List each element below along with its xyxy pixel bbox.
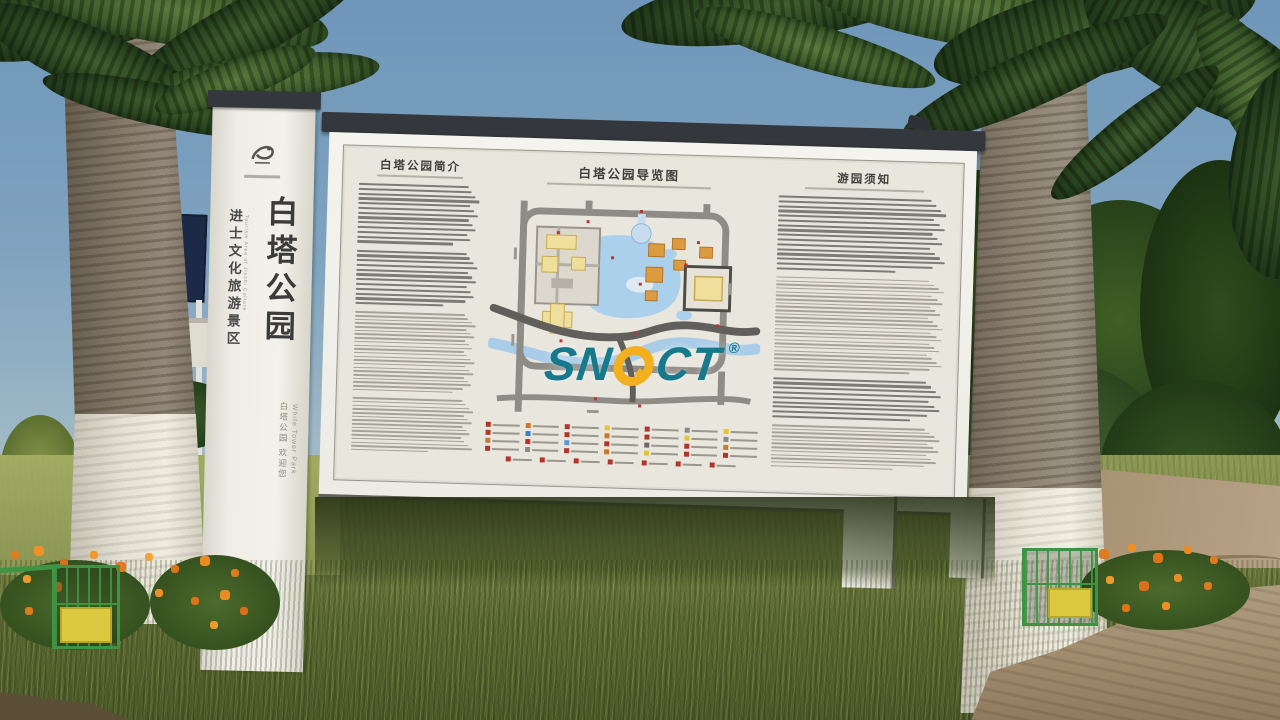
yellow-box <box>60 607 112 643</box>
intro-paragraph-cn <box>355 249 479 307</box>
orange-flowers <box>8 548 10 550</box>
watermark-suffix: CT <box>653 336 724 391</box>
pillar-cap <box>208 90 321 110</box>
text-line <box>771 465 893 470</box>
map-legend <box>485 422 758 459</box>
intro-paragraph-en <box>353 311 477 394</box>
map-pavilion <box>631 223 651 243</box>
map-building <box>645 291 657 301</box>
legend-item <box>565 440 599 446</box>
legend-item <box>676 461 702 467</box>
text-line <box>357 240 453 245</box>
legend-item <box>723 453 757 459</box>
legend-item <box>525 423 559 429</box>
notice-list-en <box>774 276 947 375</box>
legend-item <box>683 452 717 458</box>
pillar-area-label-en: Tourism Area of Jinshi Culture <box>241 215 249 312</box>
text-line <box>357 231 467 236</box>
legend-item <box>723 445 757 451</box>
legend-item <box>525 447 559 453</box>
legend-item <box>724 429 758 435</box>
map-building <box>546 235 576 250</box>
park-photo-scene: 白塔公园 进士文化旅游景区 Tourism Area of Jinshi Cul… <box>0 0 1280 720</box>
legend-item <box>644 442 678 448</box>
legend-item <box>485 430 519 436</box>
pillar-side-label: 白塔公园 欢迎您 <box>276 402 290 480</box>
legend-item <box>485 438 519 444</box>
legend-item <box>486 422 520 428</box>
text-line <box>772 415 910 421</box>
watermark: SNCT® <box>541 330 743 396</box>
pillar-side-label-en: White Tower Park <box>289 404 298 475</box>
watermark-ring-icon <box>611 346 656 386</box>
legend-item <box>525 439 559 445</box>
section-notice: 游园须知 <box>770 168 949 478</box>
map-building <box>571 257 585 270</box>
legend-item <box>605 425 639 431</box>
legend-item <box>645 426 679 432</box>
flowerbed-foliage <box>1080 550 1250 630</box>
text-line <box>359 188 472 194</box>
legend-item <box>565 424 599 430</box>
legend-item <box>642 460 668 466</box>
notice-extra-cn <box>772 377 943 422</box>
legend-item <box>540 457 566 463</box>
intro-subtitle-line <box>377 174 462 179</box>
map-building <box>551 278 573 288</box>
section-introduction: 白塔公园简介 <box>351 156 482 461</box>
board-panel: 白塔公园简介 白塔公园导览图 <box>333 144 965 498</box>
legend-item <box>564 448 598 454</box>
legend-item <box>710 462 736 468</box>
legend-item <box>604 449 638 455</box>
watermark-prefix: SN <box>542 336 616 391</box>
legend-item <box>565 432 599 438</box>
text-line <box>353 389 453 393</box>
legend-item <box>644 450 678 456</box>
legend-item <box>608 459 634 465</box>
legend-item <box>724 437 758 443</box>
text-line <box>777 267 896 273</box>
legend-item <box>684 428 718 434</box>
information-board: 白塔公园简介 白塔公园导览图 <box>319 112 978 513</box>
orange-flowers <box>1095 545 1097 547</box>
yellow-box <box>1048 588 1092 618</box>
map-building <box>646 267 663 282</box>
map-title: 白塔公园导览图 <box>493 160 765 187</box>
text-line <box>355 302 443 307</box>
map-building <box>672 238 685 249</box>
legend-item <box>684 444 718 450</box>
legend-item <box>525 431 559 437</box>
pillar-title: 白塔公园 <box>254 195 302 348</box>
map-building <box>648 244 664 257</box>
notice-list-cn <box>777 195 949 274</box>
legend-item <box>605 433 639 439</box>
map-legend-bottom <box>485 456 757 469</box>
legend-item <box>684 436 718 442</box>
intro-paragraph-en <box>351 397 475 454</box>
park-emblem-icon <box>247 139 278 170</box>
text-line <box>351 449 428 453</box>
section-guide-map: 白塔公园导览图 <box>485 160 766 469</box>
legend-item <box>574 458 600 464</box>
legend-item <box>604 441 638 447</box>
map-building <box>700 247 713 258</box>
intro-title: 白塔公园简介 <box>359 156 481 176</box>
legend-item <box>644 434 678 440</box>
map-temple <box>694 276 722 300</box>
intro-paragraph-cn <box>357 183 481 246</box>
legend-item <box>485 446 519 452</box>
legend-item <box>506 456 532 462</box>
emblem-caption <box>244 175 280 179</box>
map-building <box>674 260 686 270</box>
flowerbed-foliage <box>150 555 280 650</box>
map-building <box>542 256 558 272</box>
registered-mark: ® <box>728 340 742 357</box>
notice-extra-en <box>771 424 942 471</box>
board-body: 白塔公园简介 白塔公园导览图 <box>319 132 978 516</box>
